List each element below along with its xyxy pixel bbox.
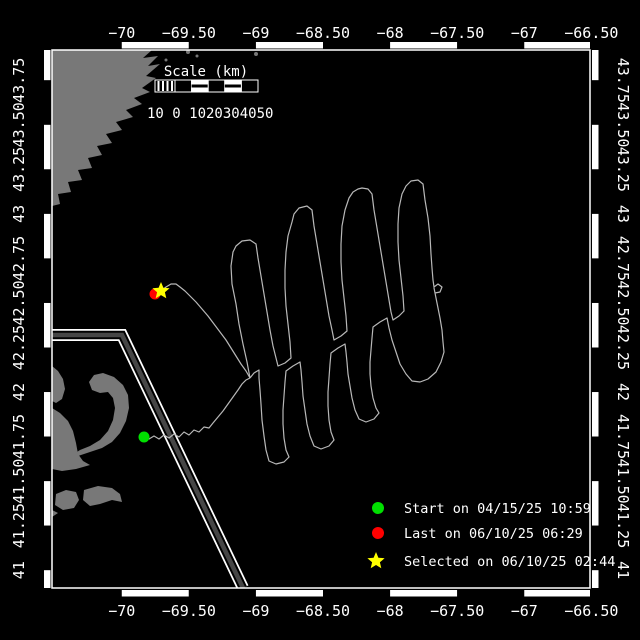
lon-tick-label-bottom: −70	[108, 602, 135, 620]
lat-tick-label-left: 43	[10, 205, 28, 223]
lat-tick-label-right: 43.50	[614, 102, 632, 147]
scale-bar: Scale (km) 10 0 1020304050	[147, 64, 273, 122]
lat-tick-label-left: 41.25	[10, 503, 28, 548]
lat-tick-label-left: 43.25	[10, 147, 28, 192]
scale-bar-boxes	[155, 80, 258, 92]
lat-tick-label-left: 42	[10, 383, 28, 401]
lon-tick-label-top: −70	[108, 24, 135, 42]
lat-tick-label-right: 41	[614, 561, 632, 579]
land-polygon	[52, 408, 90, 471]
legend-start-dot	[372, 502, 384, 514]
scale-bar-numbers: 10 0 1020304050	[147, 106, 273, 122]
glider-map-window: −70−70−69.50−69.50−69−69−68.50−68.50−68−…	[0, 0, 640, 640]
legend-start-label: Start on 04/15/25 10:59	[404, 501, 591, 517]
lon-tick-label-top: −68	[377, 24, 404, 42]
lat-tick-label-right: 43	[614, 205, 632, 223]
land-polygon	[55, 490, 79, 510]
lat-tick-label-right: 42	[614, 383, 632, 401]
land-polygon	[52, 48, 160, 206]
lat-tick-label-right: 41.50	[614, 459, 632, 504]
track-segment	[161, 284, 250, 378]
lon-tick-label-bottom: −67.50	[430, 602, 484, 620]
lat-tick-label-left: 43.75	[10, 58, 28, 103]
start-marker	[139, 432, 150, 443]
legend-selected-label: Selected on 06/10/25 02:44	[404, 554, 615, 570]
lat-tick-label-left: 43.50	[10, 102, 28, 147]
lat-tick-label-right: 41.25	[614, 503, 632, 548]
glider-track-map: −70−70−69.50−69.50−69−69−68.50−68.50−68−…	[0, 0, 640, 640]
legend-last-dot	[372, 527, 384, 539]
land-polygon	[52, 366, 65, 403]
lat-tick-label-left: 42.75	[10, 236, 28, 281]
lat-tick-label-right: 43.75	[614, 58, 632, 103]
islet	[196, 55, 199, 58]
legend-selected-star	[367, 552, 384, 568]
glider-track-line	[144, 180, 444, 464]
lon-tick-label-bottom: −66.50	[564, 602, 618, 620]
lat-tick-label-left: 41.50	[10, 459, 28, 504]
lon-tick-label-bottom: −69	[242, 602, 269, 620]
lon-tick-label-bottom: −67	[511, 602, 538, 620]
islet	[254, 52, 258, 56]
lat-tick-label-right: 42.50	[614, 280, 632, 325]
islet	[165, 59, 168, 62]
lon-tick-label-bottom: −68.50	[296, 602, 350, 620]
legend: Start on 04/15/25 10:59 Last on 06/10/25…	[367, 501, 615, 570]
legend-last-label: Last on 06/10/25 06:29	[404, 526, 583, 542]
lat-tick-label-left: 41	[10, 561, 28, 579]
legend-markers	[367, 502, 384, 568]
lon-tick-label-top: −68.50	[296, 24, 350, 42]
lon-tick-label-top: −66.50	[564, 24, 618, 42]
lon-tick-label-bottom: −69.50	[162, 602, 216, 620]
lat-tick-label-right: 43.25	[614, 147, 632, 192]
land-polygon	[74, 373, 129, 458]
land-polygon	[52, 510, 58, 517]
scale-bar-title: Scale (km)	[164, 64, 248, 80]
lon-tick-label-top: −67.50	[430, 24, 484, 42]
lat-tick-label-left: 42.50	[10, 280, 28, 325]
track-segment	[231, 180, 444, 464]
lon-tick-label-top: −69.50	[162, 24, 216, 42]
lon-tick-label-top: −67	[511, 24, 538, 42]
lat-tick-label-right: 41.75	[614, 414, 632, 459]
lat-tick-label-left: 41.75	[10, 414, 28, 459]
lat-tick-label-right: 42.25	[614, 325, 632, 370]
land-polygon	[83, 486, 122, 506]
lon-tick-label-top: −69	[242, 24, 269, 42]
lat-tick-label-right: 42.75	[614, 236, 632, 281]
lon-tick-label-bottom: −68	[377, 602, 404, 620]
lat-tick-label-left: 42.25	[10, 325, 28, 370]
